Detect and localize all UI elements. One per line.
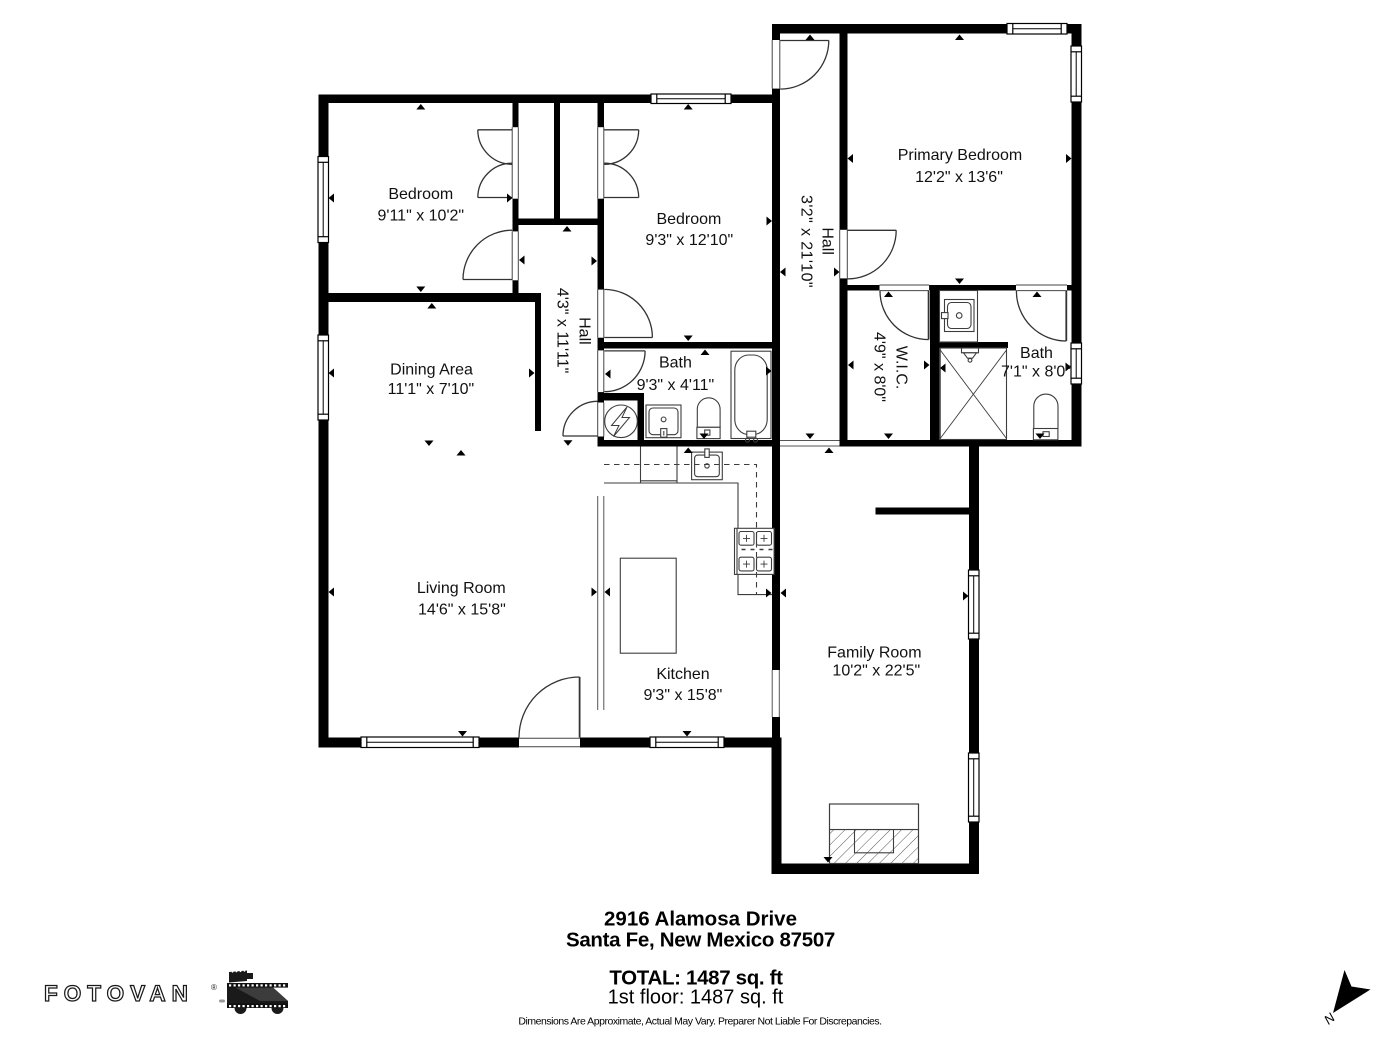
svg-text:2916 Alamosa Drive: 2916 Alamosa Drive — [604, 908, 797, 931]
svg-text:Hall: Hall — [818, 227, 835, 255]
svg-text:W.I.C.: W.I.C. — [892, 346, 909, 390]
svg-text:10'2" x 22'5": 10'2" x 22'5" — [832, 663, 920, 680]
svg-text:®: ® — [211, 983, 217, 992]
svg-text:1st floor: 1487 sq. ft: 1st floor: 1487 sq. ft — [608, 987, 784, 1009]
svg-text:Family Room: Family Room — [827, 645, 921, 662]
svg-text:Bath: Bath — [1020, 345, 1053, 362]
svg-text:9'3" x 4'11": 9'3" x 4'11" — [637, 377, 715, 394]
svg-text:11'1" x 7'10": 11'1" x 7'10" — [388, 381, 475, 398]
svg-text:4'9" x 8'0": 4'9" x 8'0" — [870, 332, 887, 402]
svg-text:Primary Bedroom: Primary Bedroom — [898, 147, 1022, 164]
svg-text:Hall: Hall — [575, 317, 592, 345]
svg-text:9'3" x 15'8": 9'3" x 15'8" — [643, 687, 722, 704]
svg-text:9'3" x 12'10": 9'3" x 12'10" — [645, 232, 733, 249]
svg-text:9'11" x 10'2": 9'11" x 10'2" — [378, 207, 465, 224]
svg-text:Santa Fe, New Mexico 87507: Santa Fe, New Mexico 87507 — [566, 928, 835, 951]
svg-text:Bath: Bath — [659, 355, 692, 372]
svg-text:12'2" x 13'6": 12'2" x 13'6" — [915, 169, 1003, 186]
svg-text:4'3" x 11'11": 4'3" x 11'11" — [553, 288, 570, 373]
svg-text:7'1" x 8'0": 7'1" x 8'0" — [1001, 364, 1071, 381]
svg-text:Dining Area: Dining Area — [390, 362, 473, 379]
svg-text:FOTOVAN: FOTOVAN — [44, 981, 194, 1006]
svg-text:Living Room: Living Room — [417, 580, 506, 597]
svg-text:Bedroom: Bedroom — [388, 186, 453, 203]
svg-text:Bedroom: Bedroom — [656, 211, 721, 228]
svg-text:14'6" x 15'8": 14'6" x 15'8" — [418, 602, 506, 619]
svg-text:Dimensions Are Approximate, Ac: Dimensions Are Approximate, Actual May V… — [518, 1016, 881, 1028]
svg-text:Kitchen: Kitchen — [656, 666, 709, 683]
svg-text:3'2" x 21'10": 3'2" x 21'10" — [797, 195, 814, 288]
